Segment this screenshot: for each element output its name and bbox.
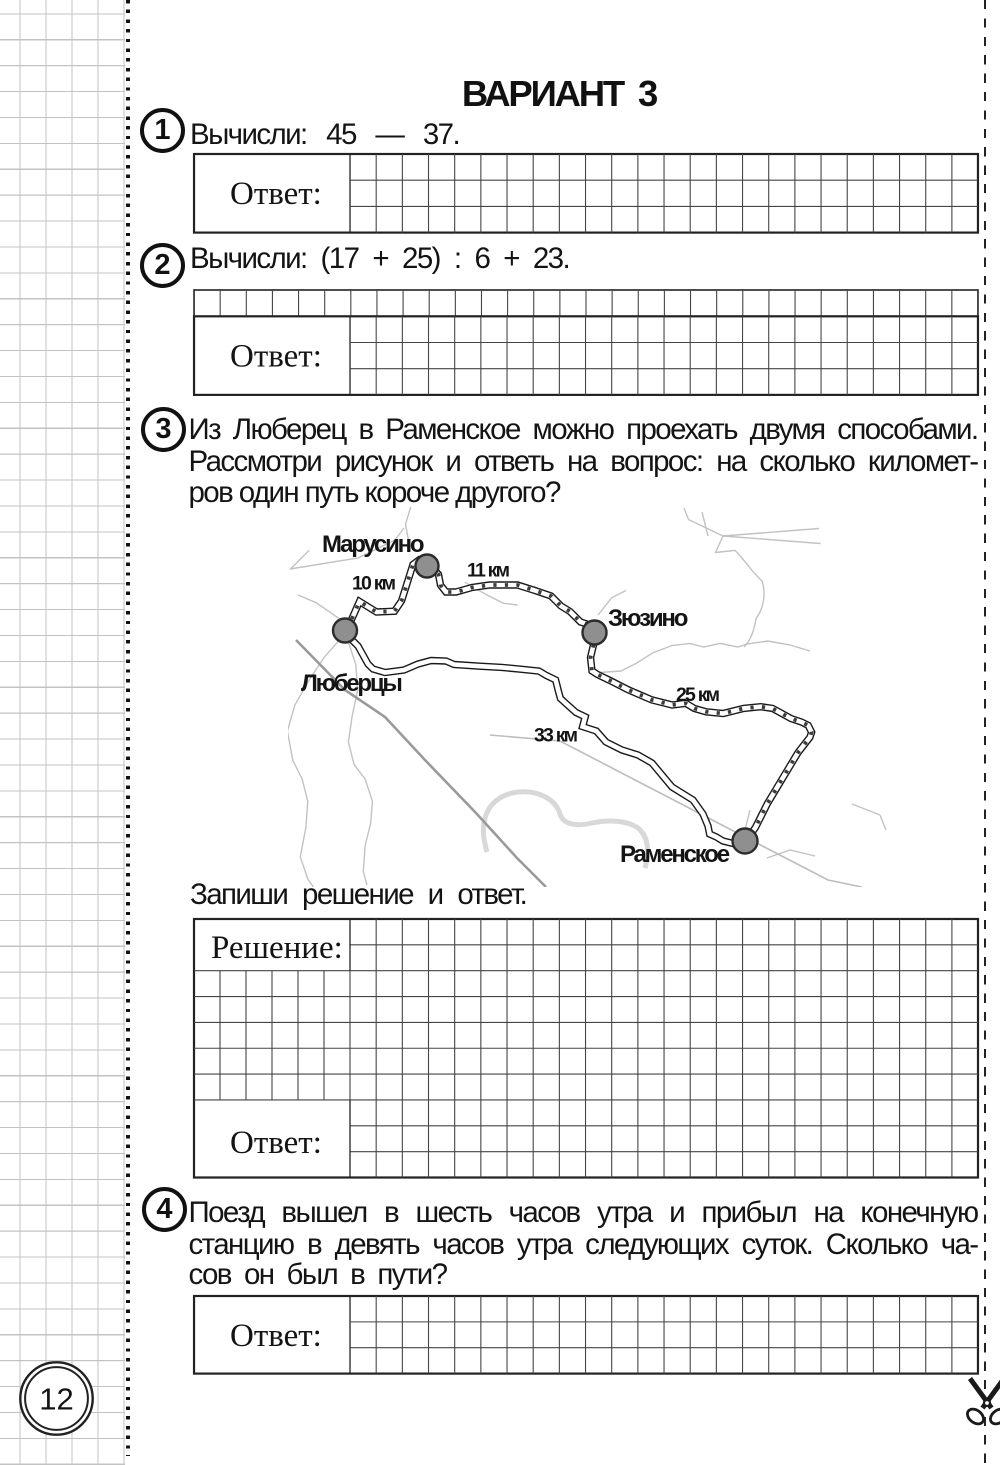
svg-text:33 км: 33 км — [534, 725, 578, 747]
svg-text:25 км: 25 км — [676, 684, 720, 706]
svg-text:Люберцы: Люберцы — [301, 670, 401, 697]
svg-text:10 км: 10 км — [352, 573, 396, 595]
svg-text:Марусино: Марусино — [322, 531, 424, 558]
svg-text:Ответ:: Ответ: — [230, 1125, 322, 1161]
svg-text:Ответ:: Ответ: — [230, 338, 322, 374]
svg-text:11 км: 11 км — [467, 560, 510, 582]
svg-text:Решение:: Решение: — [211, 930, 343, 966]
svg-text:Раменское: Раменское — [620, 841, 730, 868]
svg-text:Ответ:: Ответ: — [230, 176, 322, 212]
svg-text:Ответ:: Ответ: — [230, 1318, 322, 1354]
svg-text:Зюзино: Зюзино — [608, 605, 688, 632]
svg-text:12: 12 — [39, 1382, 73, 1417]
